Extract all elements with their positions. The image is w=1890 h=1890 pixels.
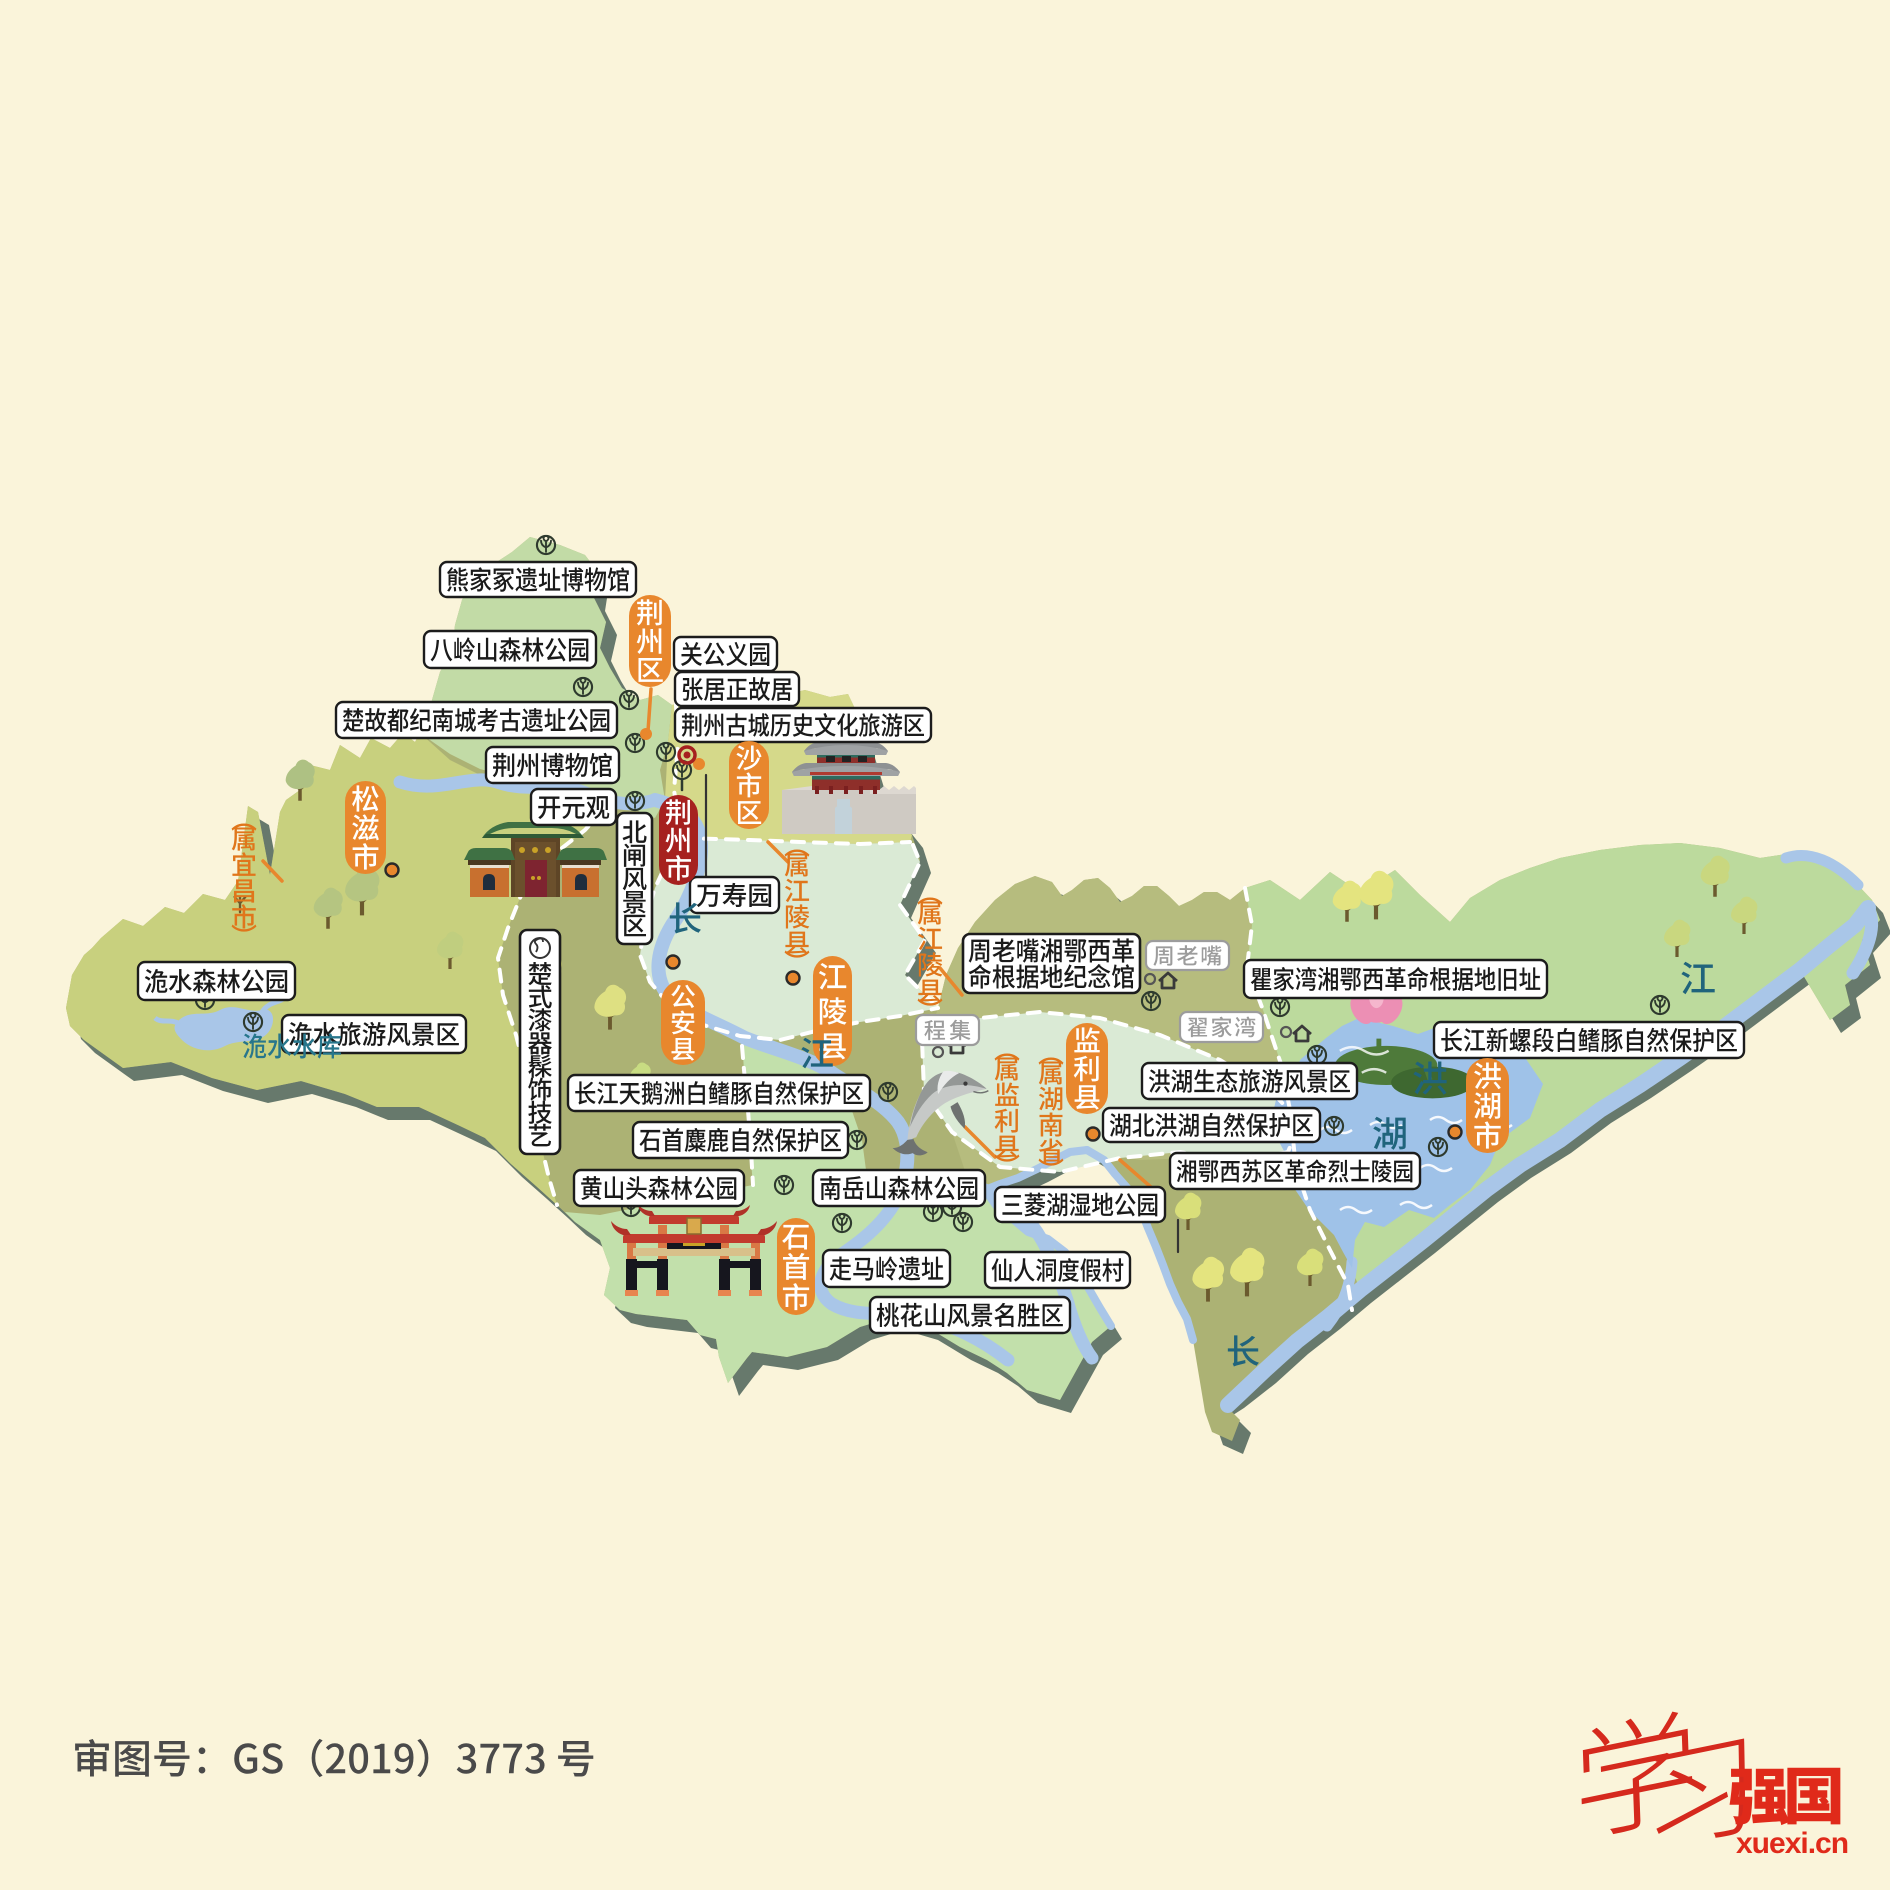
svg-text:xuexi.cn: xuexi.cn (1736, 1827, 1848, 1860)
